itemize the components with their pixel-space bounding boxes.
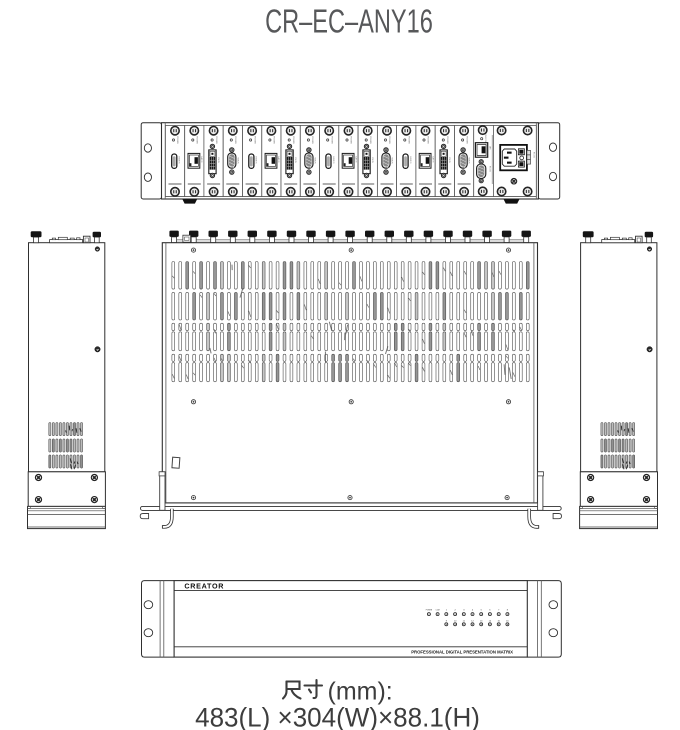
svg-text:POWER: POWER [350, 136, 352, 144]
svg-text:POWER: POWER [253, 136, 255, 144]
svg-text:VGA IN: VGA IN [391, 158, 394, 165]
svg-text:HDMI IN: HDMI IN [332, 157, 334, 165]
svg-text:LAN IN: LAN IN [277, 157, 280, 163]
svg-text:LAN IN: LAN IN [354, 157, 357, 163]
svg-text:POWER: POWER [446, 136, 448, 144]
svg-text:POWER: POWER [215, 136, 217, 144]
svg-text:POWER: POWER [330, 136, 332, 144]
svg-text:POWER: POWER [388, 136, 390, 144]
svg-text:COM: COM [436, 610, 441, 612]
svg-text:POWER: POWER [426, 610, 433, 612]
svg-text:HDMI IN: HDMI IN [255, 157, 257, 165]
svg-text:POWER: POWER [408, 136, 410, 144]
svg-text:POWER: POWER [465, 136, 467, 144]
svg-text:PROFESSIONAL DIGITAL PRESENTAT: PROFESSIONAL DIGITAL PRESENTATION MATRIX [411, 649, 513, 654]
svg-text:VGA IN: VGA IN [314, 158, 317, 165]
svg-text:VGA IN: VGA IN [236, 158, 239, 165]
svg-text:POWER: POWER [176, 136, 178, 144]
svg-text:HDMI IN: HDMI IN [178, 157, 180, 165]
svg-text:POWER: POWER [427, 136, 429, 144]
svg-text:RS-232: RS-232 [532, 152, 534, 158]
svg-text:POWER: POWER [292, 136, 294, 144]
svg-text:483(L) ×304(W)×88.1(H): 483(L) ×304(W)×88.1(H) [195, 702, 480, 730]
svg-text:POWER: POWER [311, 136, 313, 144]
svg-text:DVI IN: DVI IN [217, 158, 219, 164]
svg-text:POWER: POWER [196, 136, 198, 144]
svg-text:CR–EC–ANY16: CR–EC–ANY16 [265, 4, 433, 41]
svg-text:CREATOR: CREATOR [184, 581, 224, 590]
svg-text:HDMI IN: HDMI IN [409, 157, 411, 165]
svg-text:POWER: POWER [273, 136, 275, 144]
svg-text:RS-232: RS-232 [488, 166, 490, 172]
svg-text:DVI IN: DVI IN [294, 158, 296, 164]
svg-text:DVI IN: DVI IN [371, 158, 373, 164]
svg-text:DVI IN: DVI IN [448, 158, 450, 164]
svg-text:VGA IN: VGA IN [468, 158, 471, 165]
svg-text:POWER: POWER [369, 136, 371, 144]
svg-text:LAN IN: LAN IN [431, 157, 434, 163]
svg-text:POWER: POWER [234, 136, 236, 144]
svg-text:LAN IN: LAN IN [200, 157, 203, 163]
